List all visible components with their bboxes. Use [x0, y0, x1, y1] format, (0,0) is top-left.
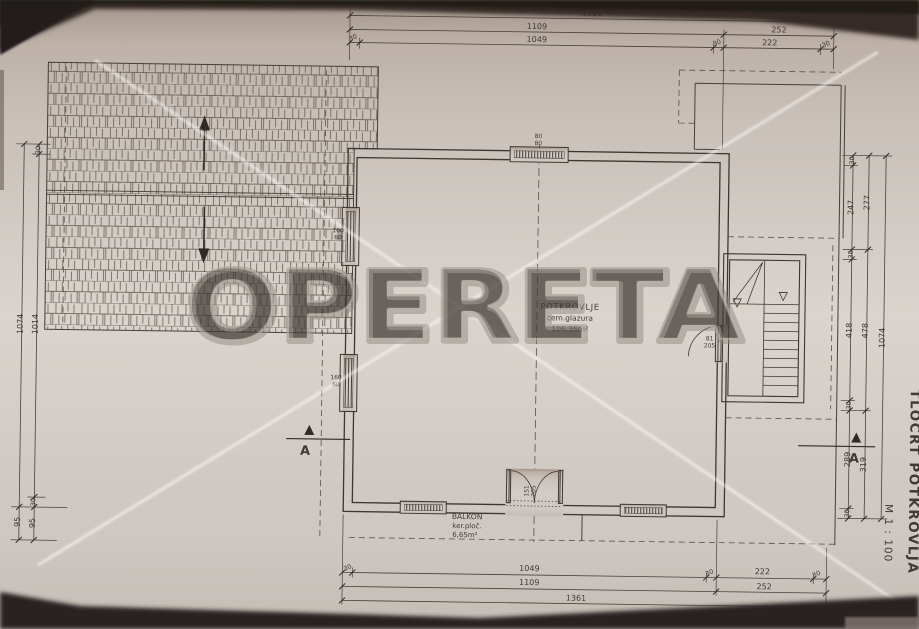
section-label-left: A: [300, 444, 310, 459]
dim-left-1074: 1074: [16, 314, 25, 334]
dim-right-30b: 30: [847, 250, 855, 258]
drawing-title-vertical: TLOCRT POTKROVLJA: [904, 389, 919, 574]
dim-left-95i: 95: [28, 518, 37, 528]
dim-top-1109: 1109: [527, 22, 547, 31]
dim-top-1049: 1049: [527, 35, 547, 44]
floorplan-photo: A A 1361 1109 252 30 1049 30 222 30 30 1…: [0, 0, 919, 629]
dim-right-289: 289: [843, 452, 852, 467]
balcony-door-height-label: 205: [530, 485, 537, 497]
dim-top-222: 222: [762, 38, 777, 47]
dim-right-478: 478: [861, 323, 870, 338]
dim-right-319: 319: [859, 457, 868, 472]
balcony-area: 6,65m²: [452, 531, 478, 539]
watermark-text: OPERETA: [187, 251, 743, 364]
dim-right-247: 247: [846, 200, 855, 215]
dim-left-30t: 30: [34, 146, 42, 154]
floorplan-drawing: A A 1361 1109 252 30 1049 30 222 30 30 1…: [0, 0, 919, 629]
side-window1-height-label: 60: [334, 234, 342, 241]
watermark: OPERETA OPERETA: [185, 249, 743, 364]
dim-right-30a: 30: [848, 156, 856, 164]
dim-bot-1049: 1049: [519, 564, 539, 573]
dim-right-30d: 30: [843, 509, 851, 517]
dim-right-277: 277: [862, 195, 871, 210]
dim-right-1074: 1074: [878, 328, 887, 348]
dim-left-1014: 1014: [31, 314, 40, 334]
dim-bot-252: 252: [756, 582, 771, 591]
roof-window-height-label: 80: [534, 140, 542, 147]
dim-left-95o: 95: [13, 517, 22, 527]
dim-top-252: 252: [771, 25, 786, 34]
balcony-name: BALKON: [452, 512, 483, 521]
dim-bot-1109: 1109: [519, 578, 539, 587]
dim-left-30b: 30: [29, 498, 37, 506]
dim-right-418: 418: [845, 323, 854, 338]
dim-right-30c: 30: [845, 401, 853, 409]
dim-bot-total: 1361: [566, 594, 586, 603]
drawing-scale-label: M 1 : 100: [882, 504, 895, 563]
balcony-finish: ker.ploč.: [452, 522, 481, 530]
photo-bottom-right-strip: [845, 617, 919, 629]
photo-left-page-edge: [0, 70, 4, 190]
dim-bot-222: 222: [755, 567, 770, 576]
